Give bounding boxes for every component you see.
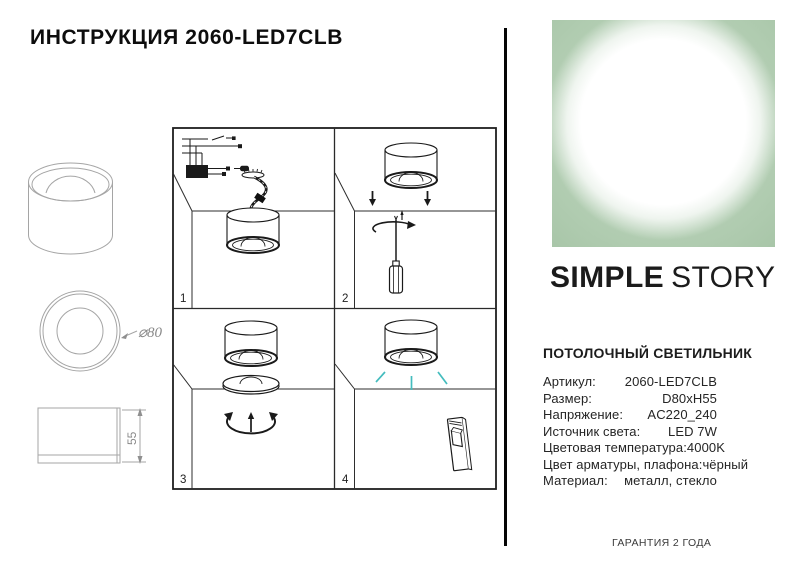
spec-value: AC220_240 bbox=[647, 407, 717, 424]
spec-row-color-temperature: Цветовая температура: 4000K bbox=[543, 440, 717, 457]
spec-label: Напряжение: bbox=[543, 407, 623, 424]
warranty-note: ГАРАНТИЯ 2 ГОДА bbox=[612, 537, 711, 549]
lamp-icon bbox=[227, 208, 279, 253]
spec-label: Артикул: bbox=[543, 374, 596, 391]
spec-label: Размер: bbox=[543, 391, 592, 408]
lamp-icon bbox=[225, 321, 277, 366]
rotate-up-arrow-icon bbox=[224, 412, 278, 433]
step-4-switch-on: 4 bbox=[342, 320, 472, 486]
lamp-side-view-drawing: 55 bbox=[30, 400, 155, 475]
brand-name-simple: SIMPLE bbox=[550, 261, 664, 294]
spec-value: 2060-LED7CLB bbox=[625, 374, 717, 391]
step-1-wiring-and-hanging: 1 bbox=[180, 136, 279, 305]
press-down-arrows bbox=[369, 191, 431, 206]
lamp-glow-image bbox=[552, 20, 775, 247]
spec-value: металл, стекло bbox=[624, 473, 717, 490]
lamp-icon bbox=[385, 320, 437, 365]
brand-logo: SIMPLESTORY bbox=[550, 261, 778, 295]
brand-name-story: STORY bbox=[671, 261, 775, 294]
vertical-divider bbox=[504, 28, 507, 546]
lamp-icon bbox=[385, 143, 437, 188]
step-2-fix-base: 2 bbox=[342, 143, 437, 305]
spec-label: Цвет арматуры, плафона: bbox=[543, 457, 702, 474]
height-dimension-label: 55 bbox=[125, 431, 139, 445]
spec-row-body-color: Цвет арматуры, плафона: чёрный bbox=[543, 457, 717, 474]
spec-value: LED 7W bbox=[668, 424, 717, 441]
spec-label: Материал: bbox=[543, 473, 608, 490]
step-3-attach-ring: 3 bbox=[180, 321, 279, 486]
lamp-top-view-drawing: ⌀80 bbox=[35, 285, 170, 380]
spec-label: Источник света: bbox=[543, 424, 640, 441]
light-rays-icon bbox=[376, 372, 447, 390]
wall-switch-icon bbox=[447, 417, 471, 472]
diagram-grid-lines bbox=[173, 128, 496, 489]
diffuser-ring-icon bbox=[223, 376, 279, 395]
dimension-arrowhead bbox=[138, 408, 143, 416]
wiring-diagram-icon bbox=[182, 136, 249, 178]
spec-value: D80xH55 bbox=[662, 391, 717, 408]
spec-label: Цветовая температура: bbox=[543, 440, 687, 457]
step-number: 3 bbox=[180, 474, 186, 486]
dimension-arrowhead bbox=[121, 333, 128, 339]
installation-steps-diagram: 1 bbox=[172, 127, 497, 490]
lamp-3d-view-drawing bbox=[25, 155, 120, 260]
diameter-dimension-label: ⌀80 bbox=[138, 325, 163, 341]
page-title: ИНСТРУКЦИЯ 2060-LED7CLB bbox=[30, 26, 343, 50]
spec-row-voltage: Напряжение: AC220_240 bbox=[543, 407, 717, 424]
spec-row-material: Материал: металл, стекло bbox=[543, 473, 717, 490]
step-number: 4 bbox=[342, 474, 349, 486]
dimension-arrowhead bbox=[138, 456, 143, 464]
product-info: ПОТОЛОЧНЫЙ СВЕТИЛЬНИК Артикул: 2060-LED7… bbox=[543, 345, 717, 490]
product-heading: ПОТОЛОЧНЫЙ СВЕТИЛЬНИК bbox=[543, 345, 717, 361]
spec-row-article: Артикул: 2060-LED7CLB bbox=[543, 374, 717, 391]
screwdriver-icon bbox=[373, 210, 416, 293]
step-number: 2 bbox=[342, 293, 348, 305]
spec-value: 4000K bbox=[687, 440, 725, 457]
spec-value: чёрный bbox=[702, 457, 748, 474]
step-number: 1 bbox=[180, 293, 186, 305]
instruction-sheet: ИНСТРУКЦИЯ 2060-LED7CLB ⌀80 55 bbox=[0, 0, 800, 577]
spec-row-size: Размер: D80xH55 bbox=[543, 391, 717, 408]
spec-row-light-source: Источник света: LED 7W bbox=[543, 424, 717, 441]
